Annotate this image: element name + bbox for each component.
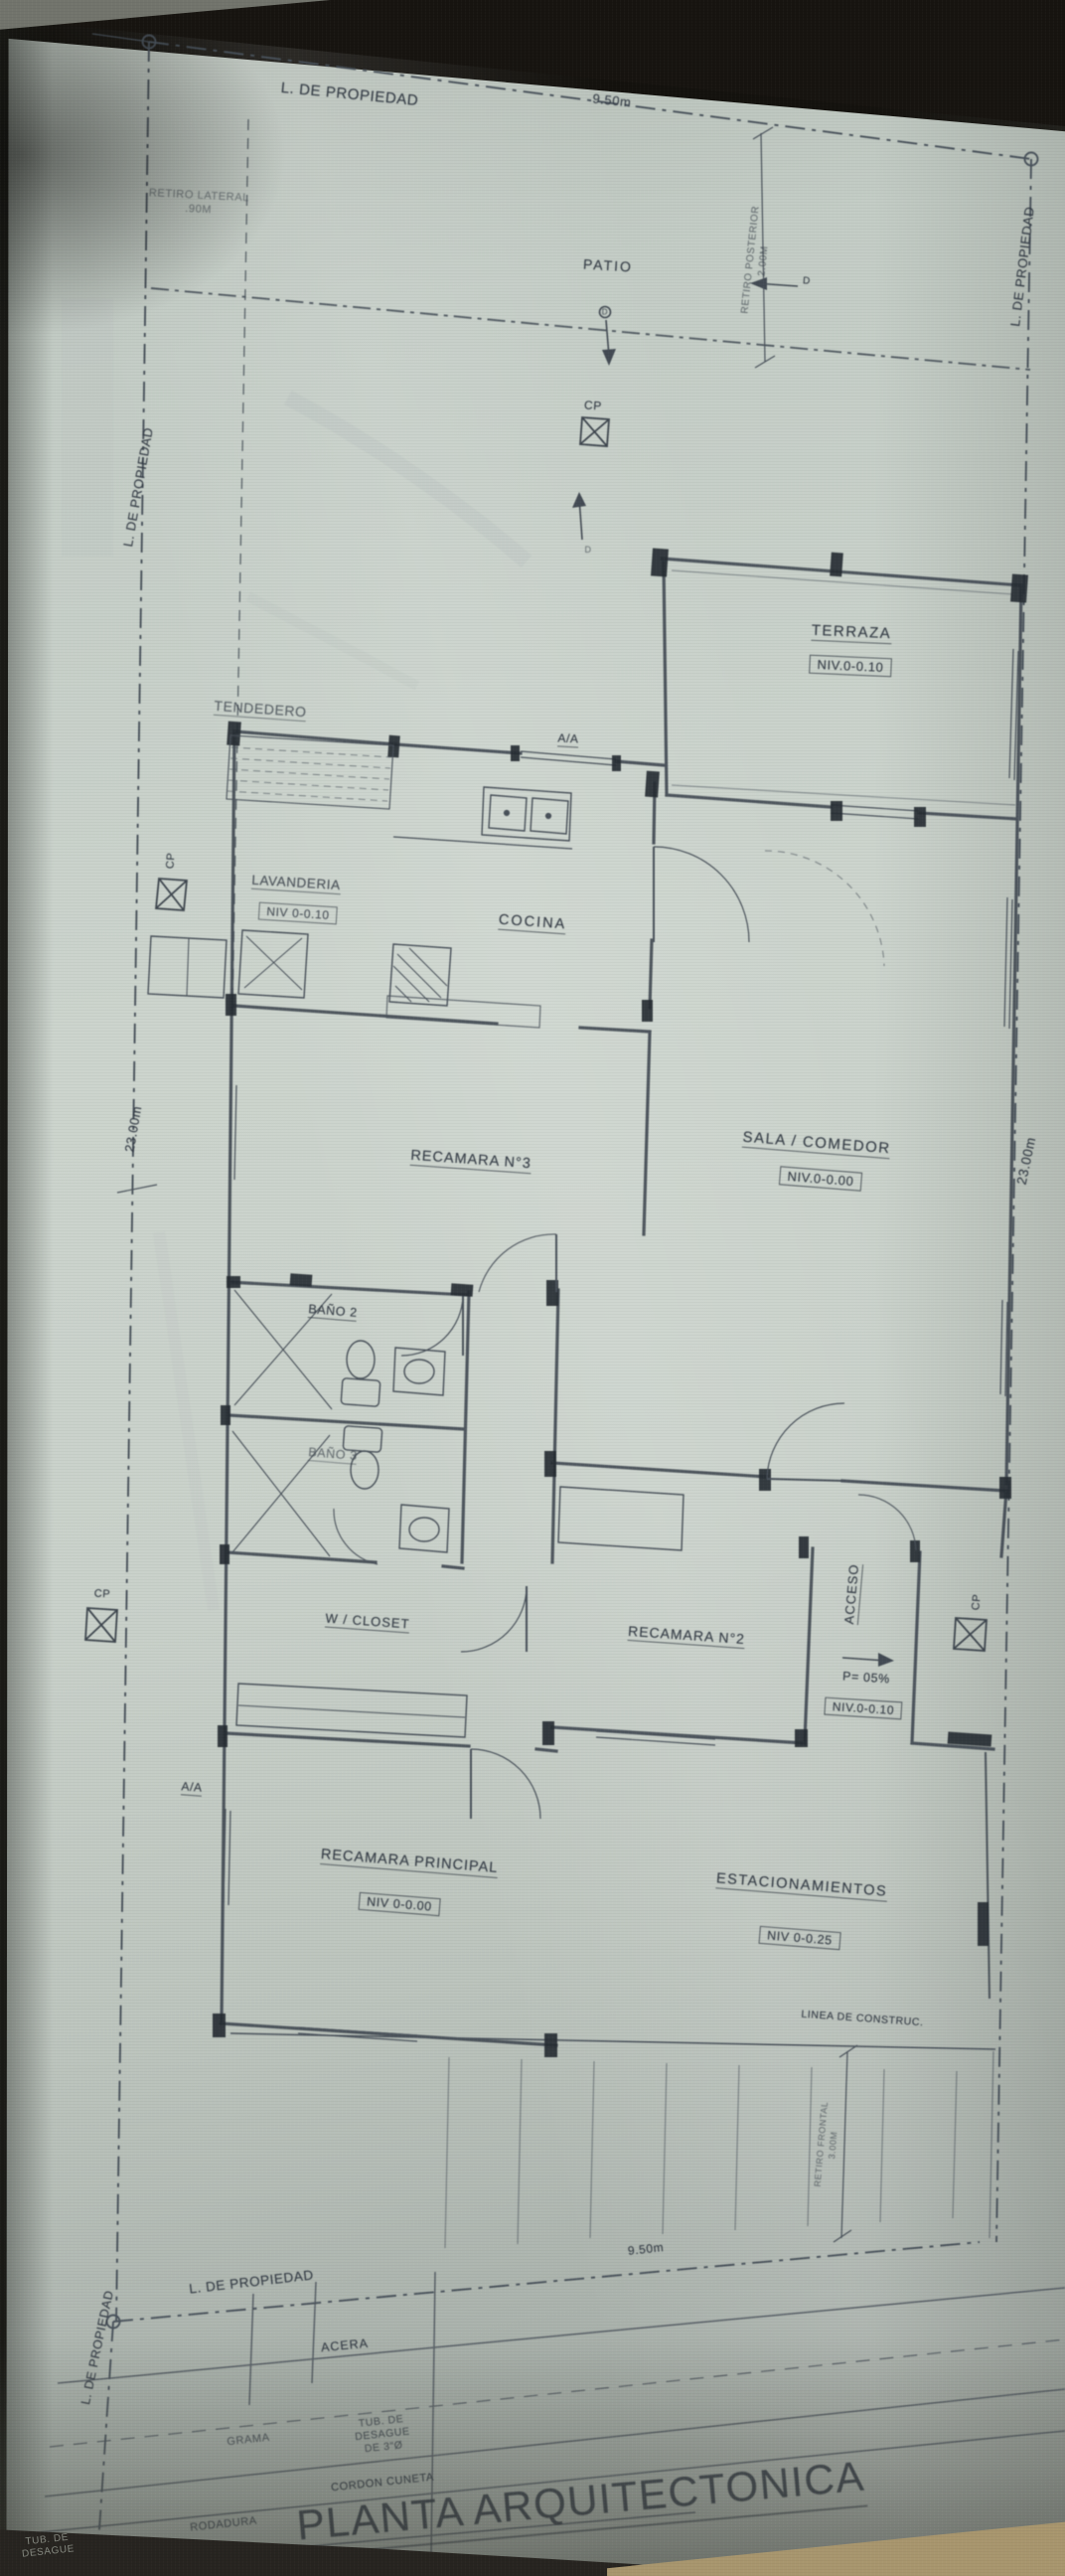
columns-layer	[213, 548, 1028, 2057]
street-label-tub-desague: TUB. DE DESAGUE DE 3"Ø	[353, 2413, 411, 2458]
drain-marker-center: D	[584, 545, 591, 555]
floor-plan-layer: L. DE PROPIEDAD 9.50m RETIRO LATERAL .90…	[0, 0, 1065, 2576]
plan-linework	[0, 0, 1065, 2576]
drain-marker-right: D	[803, 275, 812, 287]
retiro-lateral-text: RETIRO LATERAL	[149, 187, 250, 204]
room-label-terraza: TERRAZA	[811, 622, 891, 644]
walls-layer	[221, 559, 1021, 2045]
arrows-layer	[572, 277, 894, 1667]
drain-marker-top: D	[602, 308, 608, 317]
cp-marker-left-mid: CP	[164, 852, 177, 869]
cp-boxes-layer	[85, 417, 987, 1651]
property-lines-layer	[92, 34, 1038, 2574]
door-arcs-layer	[334, 847, 916, 1819]
dimension-lines-layer	[117, 127, 857, 2242]
retiro-frontal-value: 3.00M	[827, 2131, 838, 2160]
cp-marker-left-low: CP	[93, 1588, 110, 1601]
slope-label-acceso: P= 05%	[842, 1670, 891, 1687]
ac-unit-label-principal: A/A	[181, 1779, 203, 1796]
tub-desague-line3: DE 3"Ø	[364, 2439, 403, 2455]
retiro-lateral-value: .90M	[185, 203, 212, 216]
room-label-patio: PATIO	[583, 255, 634, 274]
retiro-lateral-label: RETIRO LATERAL .90M	[148, 186, 249, 220]
retiro-posterior-value: 2.00M	[756, 245, 770, 277]
level-terraza: NIV.0-0.10	[809, 655, 892, 678]
cp-marker-top: CP	[584, 398, 603, 412]
ac-unit-label-cocina: A/A	[557, 730, 579, 747]
cp-marker-right: CP	[970, 1593, 983, 1610]
thin-lines-layer	[40, 570, 1065, 2568]
blueprint-photo: L. DE PROPIEDAD 9.50m RETIRO LATERAL .90…	[0, 0, 1065, 2576]
